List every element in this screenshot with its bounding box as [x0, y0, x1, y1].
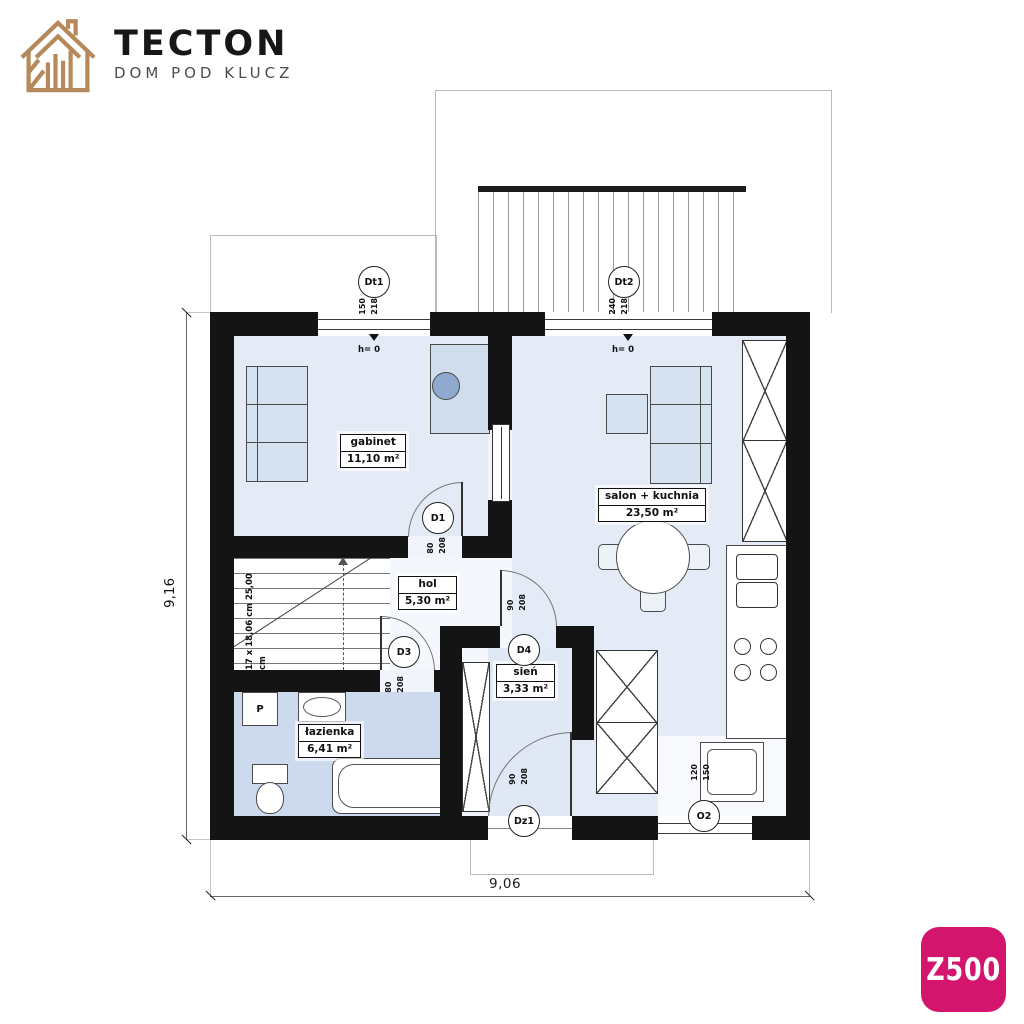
room-name: gabinet: [341, 435, 405, 452]
window-terrace-door-1: [318, 312, 430, 336]
opening-width: 240: [608, 298, 617, 315]
stove-burner-icon: [760, 664, 777, 681]
sink-icon: [736, 554, 778, 580]
logo: TECTON DOM POD KLUCZ: [16, 12, 293, 96]
extension-line: [210, 840, 211, 896]
opening-height: 218: [620, 298, 629, 315]
closet-icon: [462, 662, 490, 812]
opening-circle-d1: D1: [422, 502, 454, 534]
wardrobe-icon: [742, 340, 788, 442]
wall-sien-top-a: [440, 626, 500, 648]
desk-chair-icon: [432, 372, 460, 400]
opening-width: 80: [426, 537, 435, 554]
extension-line: [186, 839, 210, 840]
sofa-back-line: [257, 367, 258, 481]
wall-gabinet-bottom-b: [462, 536, 512, 558]
opening-width: 90: [506, 594, 515, 611]
extension-line: [809, 840, 810, 896]
bathtub-inner: [338, 764, 454, 808]
opening-width: 120: [690, 764, 699, 781]
wall-bottom-b: [572, 816, 658, 840]
coffee-table-icon: [606, 394, 648, 434]
sofa-cushion-line: [247, 404, 307, 405]
wall-lazienka-top-a: [234, 670, 380, 692]
sink-icon: [736, 582, 778, 608]
stove-burner-icon: [734, 638, 751, 655]
opening-height: 218: [370, 298, 379, 315]
wall-sien-right: [572, 648, 594, 740]
dimension-line-left: [186, 312, 187, 840]
wall-left: [210, 312, 234, 840]
sofa-cushion-line: [651, 443, 711, 444]
washer-icon: P: [242, 692, 278, 726]
dimension-label-width: 9,06: [489, 876, 521, 892]
wall-bottom-a: [210, 816, 488, 840]
fridge-inner: [707, 749, 757, 795]
window-terrace-door-2: [545, 312, 712, 336]
toilet-tank-icon: [252, 764, 288, 784]
room-label-hol: hol 5,30 m²: [398, 576, 457, 610]
opening-size-dt2: 240 218: [608, 298, 629, 315]
wall-gabinet-salon-a: [488, 336, 512, 430]
room-label-sien: sień 3,33 m²: [496, 664, 555, 698]
room-label-gabinet: gabinet 11,10 m²: [340, 434, 406, 468]
entry-porch-outline: [470, 840, 654, 875]
room-area: 6,41 m²: [299, 742, 360, 758]
floor-plan-page: TECTON DOM POD KLUCZ 17 x 18,06 cm 25,00…: [0, 0, 1024, 1024]
dimension-line-bottom: [210, 896, 810, 897]
opening-height: 150: [702, 764, 711, 781]
toilet-bowl-icon: [256, 782, 284, 814]
opening-height: 208: [518, 594, 527, 611]
sofa-cushion-line: [247, 442, 307, 443]
opening-size-o2: 120 150: [690, 764, 711, 781]
opening-size-d1: 80 208: [426, 537, 447, 554]
room-label-salon: salon + kuchnia 23,50 m²: [598, 488, 706, 522]
wall-top-b: [430, 312, 545, 336]
z500-badge-label: Z500: [926, 952, 1001, 988]
roof-overhang-outline: [210, 235, 437, 313]
sliding-door-panel: [501, 427, 502, 499]
stairs-walk-line: [343, 558, 344, 670]
stove-burner-icon: [760, 638, 777, 655]
door-leaf-d3: [380, 616, 382, 670]
wardrobe-icon: [742, 440, 788, 542]
glass: [318, 319, 430, 330]
stairs-note-line1: 17 x 18,06 cm: [245, 603, 255, 670]
sill-height-label-1: h= 0: [358, 345, 380, 355]
room-area: 3,33 m²: [497, 682, 554, 698]
room-area: 11,10 m²: [341, 452, 405, 468]
stairs-note: 17 x 18,06 cm 25,00 cm: [244, 562, 270, 670]
opening-circle-o2: O2: [688, 800, 720, 832]
logo-house-icon: [16, 12, 100, 96]
sofa-icon: [650, 366, 712, 484]
dimension-label-height: 9,16: [160, 548, 180, 608]
washbasin-icon: [298, 692, 346, 722]
washer-label: P: [256, 704, 263, 715]
washbasin-inner: [303, 697, 341, 717]
opening-size-d3: 80 208: [384, 676, 405, 693]
dimension-value: 9,16: [162, 578, 178, 608]
room-area: 5,30 m²: [399, 594, 456, 610]
wall-sien-top-b: [556, 626, 594, 648]
sofa-back-line: [700, 367, 701, 483]
room-name: salon + kuchnia: [599, 489, 705, 506]
opening-width: 90: [508, 768, 517, 785]
stairs-walk-arrow: [338, 558, 348, 565]
closet-icon: [596, 650, 658, 724]
closet-icon: [596, 722, 658, 794]
door-leaf-d1: [461, 482, 463, 536]
window-tick-icon: [369, 334, 379, 341]
opening-circle-dt1: Dt1: [358, 266, 390, 298]
stove-burner-icon: [734, 664, 751, 681]
room-name: hol: [399, 577, 456, 594]
opening-circle-dt2: Dt2: [608, 266, 640, 298]
sliding-door: [492, 424, 510, 502]
wall-bottom-c: [752, 816, 810, 840]
wall-sien-left: [440, 648, 462, 816]
opening-height: 208: [396, 676, 405, 693]
opening-size-d4: 90 208: [506, 594, 527, 611]
window-tick-icon: [623, 334, 633, 341]
opening-circle-dz1: Dz1: [508, 805, 540, 837]
extension-line: [186, 312, 210, 313]
opening-height: 208: [520, 768, 529, 785]
room-label-lazienka: łazienka 6,41 m²: [298, 724, 361, 758]
sofa-icon: [246, 366, 308, 482]
room-name: łazienka: [299, 725, 360, 742]
wall-right: [786, 312, 810, 840]
glass: [545, 319, 712, 330]
opening-circle-d4: D4: [508, 634, 540, 666]
brand-block: TECTON DOM POD KLUCZ: [114, 26, 293, 83]
brand-tagline: DOM POD KLUCZ: [114, 64, 293, 82]
opening-width: 80: [384, 676, 393, 693]
opening-size-dt1: 150 218: [358, 298, 379, 315]
sofa-cushion-line: [651, 404, 711, 405]
room-area: 23,50 m²: [599, 506, 705, 522]
opening-size-dz1: 90 208: [508, 768, 529, 785]
door-leaf-d4: [500, 570, 502, 626]
wall-gabinet-bottom-a: [234, 536, 408, 558]
sill-height-label-2: h= 0: [612, 345, 634, 355]
opening-width: 150: [358, 298, 367, 315]
opening-circle-d3: D3: [388, 636, 420, 668]
dining-table-icon: [616, 520, 690, 594]
z500-badge: Z500: [921, 927, 1006, 1012]
opening-height: 208: [438, 537, 447, 554]
brand-name: TECTON: [114, 26, 293, 63]
room-name: sień: [497, 665, 554, 682]
door-leaf-dz1: [570, 732, 572, 816]
